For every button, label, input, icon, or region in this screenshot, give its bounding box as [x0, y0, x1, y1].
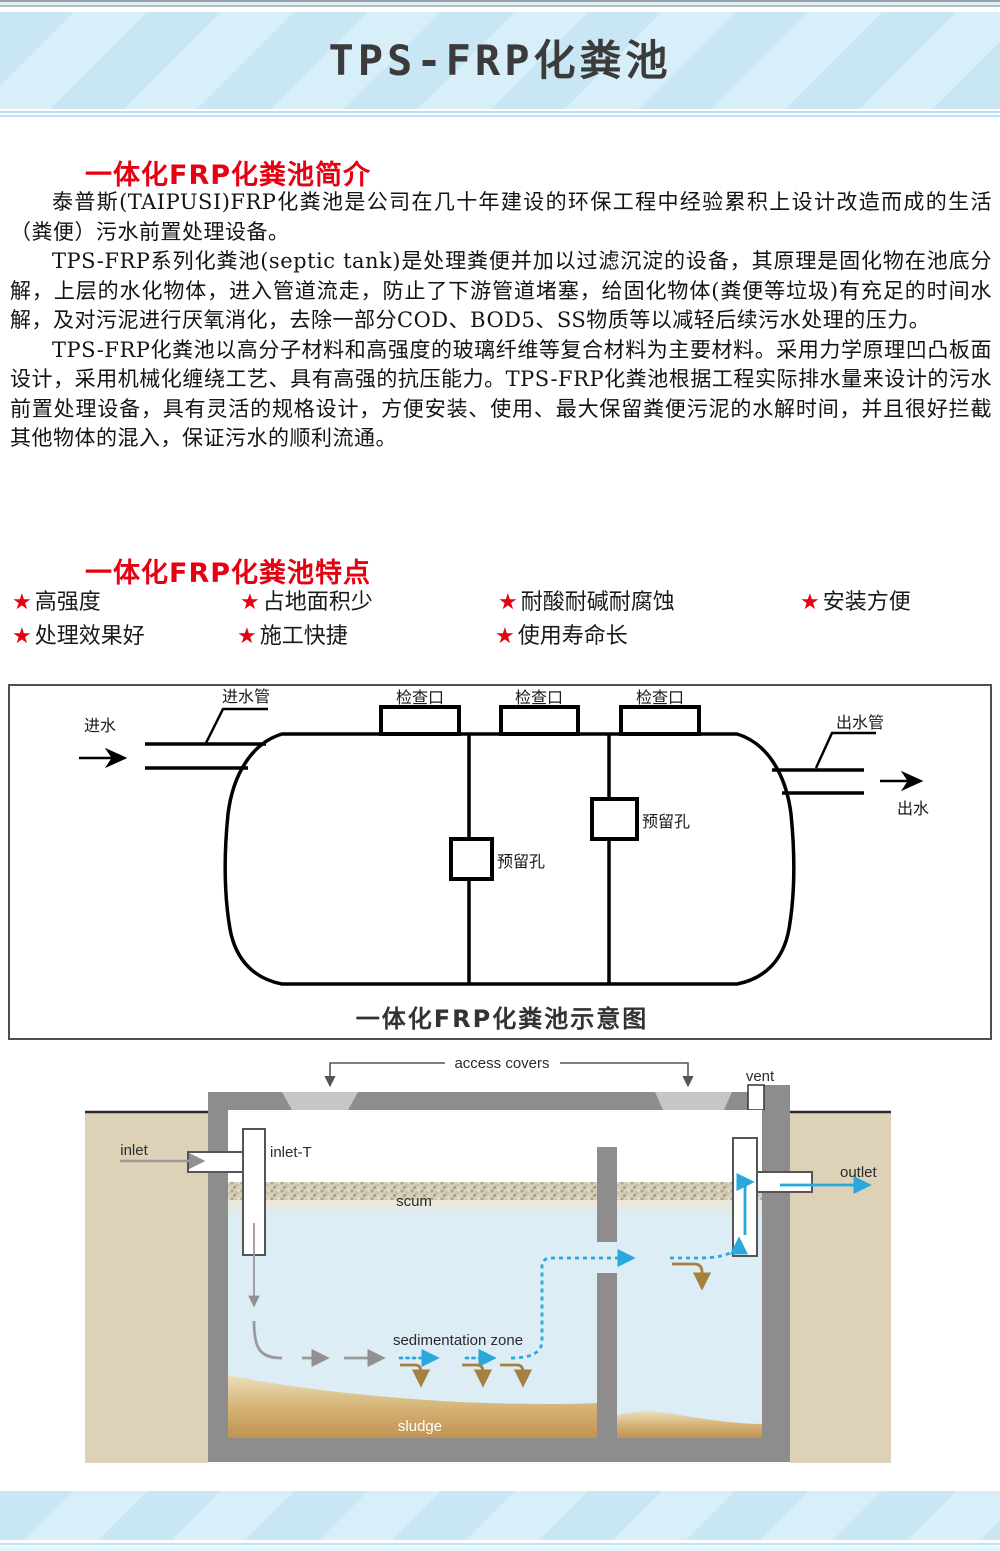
outlet-pipe-leader: [816, 733, 876, 768]
inspection-port-1: [381, 707, 459, 734]
inlet-t-label: inlet-T: [270, 1144, 312, 1161]
feature-item: ★安装方便: [800, 584, 911, 616]
header-bottom-line: [0, 111, 1000, 113]
header-bottom-line2: [0, 115, 1000, 117]
feature-label: 安装方便: [823, 590, 911, 615]
outlet-pipe: [757, 1172, 812, 1192]
outlet-label: outlet: [840, 1164, 878, 1181]
access-covers-label: access covers: [454, 1055, 549, 1072]
star-icon: ★: [240, 590, 260, 615]
intro-heading: 一体化FRP化粪池简介: [85, 153, 371, 192]
header-top-line2: [0, 5, 1000, 7]
header-banner: TPS-FRP化粪池: [0, 12, 1000, 109]
outlet-pipe-label: 出水管: [836, 713, 884, 732]
outlet-label: 出水: [897, 799, 929, 818]
footer-banner: [0, 1491, 1000, 1540]
feature-label: 耐酸耐碱耐腐蚀: [521, 590, 675, 615]
inlet-label: inlet: [120, 1142, 148, 1159]
reserved-hole-label: 预留孔: [497, 852, 545, 871]
inspection-port-label: 检查口: [636, 688, 684, 707]
baffle-upper: [597, 1147, 617, 1242]
tank-schematic-box: 检查口 检查口 检查口 预留孔 预留孔 进水管 进水 出水管 出水 一体化FRP…: [8, 684, 992, 1040]
sedimentation-zone-label: sedimentation zone: [393, 1332, 523, 1349]
star-icon: ★: [498, 590, 518, 615]
intro-paragraphs: 泰普斯(TAIPUSI)FRP化粪池是公司在几十年建设的环保工程中经验累积上设计…: [10, 188, 992, 454]
access-cover-right: [655, 1092, 732, 1110]
inspection-port-label: 检查口: [396, 688, 444, 707]
feature-label: 施工快捷: [260, 624, 348, 649]
tank-wall-right: [762, 1110, 790, 1438]
feature-label: 处理效果好: [35, 624, 145, 649]
scum-layer: [228, 1182, 762, 1200]
sludge-label: sludge: [398, 1418, 442, 1435]
vent-label: vent: [746, 1068, 775, 1085]
star-icon: ★: [12, 590, 32, 615]
schematic-caption: 一体化FRP化粪池示意图: [356, 1005, 648, 1033]
inlet-pipe-leader: [206, 709, 268, 743]
tank-floor: [208, 1438, 790, 1462]
feature-label: 占地面积少: [263, 590, 373, 615]
inlet-pipe-label: 进水管: [222, 687, 270, 706]
feature-label: 高强度: [35, 590, 101, 615]
feature-item: ★处理效果好: [12, 618, 145, 650]
star-icon: ★: [237, 624, 257, 649]
reserved-hole-lower: [451, 839, 492, 879]
page: { "header": { "title": "TPS-FRP化粪池" }, "…: [0, 0, 1000, 1551]
star-icon: ★: [495, 624, 515, 649]
feature-item: ★占地面积少: [240, 584, 373, 616]
page-title: TPS-FRP化粪池: [0, 12, 1000, 109]
access-cover-left: [282, 1092, 358, 1110]
intro-paragraph-3: TPS-FRP化粪池以高分子材料和高强度的玻璃纤维等复合材料为主要材料。采用力学…: [10, 336, 992, 454]
inspection-port-3: [621, 707, 699, 734]
scum-fade: [228, 1198, 762, 1216]
star-icon: ★: [12, 624, 32, 649]
cross-section-box: access covers vent inlet inlet-T scum ou…: [80, 1053, 940, 1463]
baffle-lower: [597, 1273, 617, 1438]
feature-item: ★使用寿命长: [495, 618, 628, 650]
intro-paragraph-1: 泰普斯(TAIPUSI)FRP化粪池是公司在几十年建设的环保工程中经验累积上设计…: [10, 188, 992, 247]
feature-item: ★施工快捷: [237, 618, 348, 650]
intro-paragraph-2: TPS-FRP系列化粪池(septic tank)是处理粪便并加以过滤沉淀的设备…: [10, 247, 992, 336]
inspection-port-2: [501, 707, 578, 734]
inspection-port-label: 检查口: [515, 688, 563, 707]
footer-line: [0, 1543, 1000, 1545]
tank-schematic: 检查口 检查口 检查口 预留孔 预留孔 进水管 进水 出水管 出水 一体化FRP…: [10, 686, 990, 1038]
feature-item: ★耐酸耐碱耐腐蚀: [498, 584, 675, 616]
cross-section-illustration: access covers vent inlet inlet-T scum ou…: [80, 1053, 940, 1463]
tank-lid-right: [764, 1085, 790, 1110]
feature-item: ★高强度: [12, 584, 101, 616]
feature-label: 使用寿命长: [518, 624, 628, 649]
access-covers-bracket-right: [560, 1063, 688, 1085]
inlet-label: 进水: [84, 716, 116, 735]
scum-label: scum: [396, 1193, 432, 1210]
footer-bottom-strip: [0, 1546, 1000, 1551]
vent-opening: [748, 1085, 764, 1110]
access-covers-bracket-left: [330, 1063, 445, 1085]
reserved-hole-label: 预留孔: [642, 812, 690, 831]
star-icon: ★: [800, 590, 820, 615]
reserved-hole-upper: [592, 799, 637, 839]
